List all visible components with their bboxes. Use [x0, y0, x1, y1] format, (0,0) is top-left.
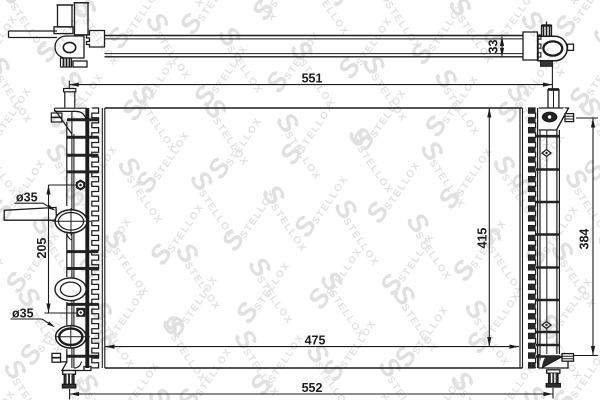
- svg-text:551: 551: [302, 72, 323, 86]
- svg-text:384: 384: [578, 229, 592, 250]
- svg-text:33: 33: [487, 40, 501, 54]
- svg-text:ø35: ø35: [16, 191, 38, 205]
- svg-text:205: 205: [35, 238, 49, 259]
- svg-text:552: 552: [302, 381, 323, 395]
- svg-text:475: 475: [305, 334, 326, 348]
- svg-text:415: 415: [476, 228, 490, 249]
- svg-text:ø35: ø35: [12, 307, 34, 321]
